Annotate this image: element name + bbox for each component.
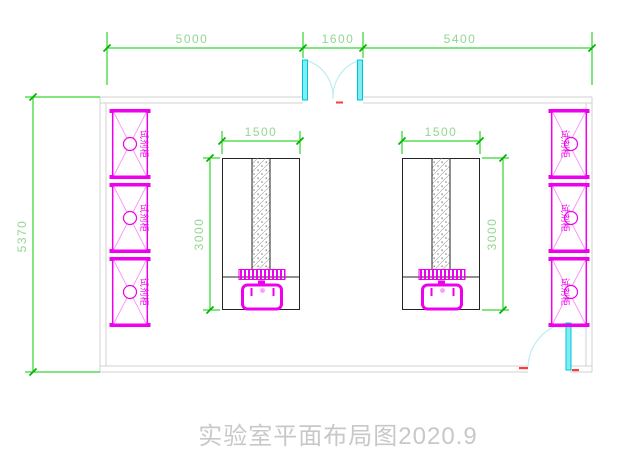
cabinet-foot	[147, 323, 151, 327]
cabinet-knob	[124, 138, 137, 151]
cabinet-foot	[549, 323, 553, 327]
cabinet-foot	[586, 109, 590, 113]
door-swing-arc-left	[308, 61, 333, 99]
dim-text-5370: 5370	[15, 220, 29, 253]
cabinet-right-2[interactable]: 试剂柜	[549, 183, 590, 253]
cabinet-foot	[110, 175, 114, 179]
cabinet-cap	[112, 176, 148, 180]
cabinet-label: 试剂柜	[139, 130, 150, 159]
cabinet-left-3[interactable]: 试剂柜	[110, 257, 151, 327]
drawing-title[interactable]: 实验室平面布局图2020.9	[198, 423, 477, 450]
cabinet-cap	[112, 109, 148, 113]
dim-text-5400: 5400	[444, 32, 477, 46]
cabinet-foot	[549, 183, 553, 187]
cabinet-foot	[147, 257, 151, 261]
cabinet-cap	[112, 183, 148, 187]
dim-text-3000: 3000	[485, 218, 499, 251]
cabinet-label: 试剂柜	[560, 130, 571, 159]
cabinet-knob	[124, 212, 137, 225]
cabinet-right-1[interactable]: 试剂柜	[549, 109, 590, 179]
cad-canvas[interactable]: 5000 1600 5400 5370 试剂柜	[0, 0, 619, 469]
door-swing-arc	[528, 323, 569, 367]
door-jamb-mark-left	[519, 367, 528, 369]
door-threshold-mark	[336, 102, 343, 104]
cabinet-cap	[551, 183, 587, 187]
cabinet-left-1[interactable]: 试剂柜	[110, 109, 151, 179]
cabinet-left-2[interactable]: 试剂柜	[110, 183, 151, 253]
door-swing-arc-right	[333, 61, 358, 99]
walls[interactable]	[100, 97, 592, 372]
cabinet-label: 试剂柜	[560, 204, 571, 233]
door-leaf-right	[358, 60, 363, 100]
cabinet-foot	[147, 175, 151, 179]
duct-strip-hatch	[252, 159, 270, 270]
door-jamb-mark-right	[572, 369, 579, 371]
dimension-top-chain[interactable]: 5000 1600 5400	[104, 32, 596, 85]
cabinet-cap	[112, 257, 148, 261]
cabinet-foot	[549, 257, 553, 261]
dimension-bench-left-width[interactable]: 1500	[219, 125, 304, 154]
top-double-door[interactable]	[303, 60, 363, 104]
door-leaf	[566, 323, 571, 370]
cabinet-column-right[interactable]: 试剂柜 试剂柜 试剂柜	[549, 109, 590, 327]
cabinet-cap	[551, 250, 587, 254]
cabinet-cap	[551, 109, 587, 113]
cabinet-foot	[147, 249, 151, 253]
cabinet-foot	[586, 257, 590, 261]
cabinet-foot	[586, 249, 590, 253]
cabinet-knob	[124, 286, 137, 299]
cabinet-foot	[110, 109, 114, 113]
dimension-bench-left-height[interactable]: 3000	[192, 155, 220, 314]
dim-text-1500: 1500	[245, 125, 278, 139]
dim-text-5000: 5000	[176, 32, 209, 46]
cabinet-foot	[110, 323, 114, 327]
sink-drain	[440, 288, 445, 293]
cabinet-cap	[551, 176, 587, 180]
cabinet-foot	[549, 249, 553, 253]
sink-grate	[419, 270, 465, 280]
cabinet-foot	[110, 257, 114, 261]
cabinet-cap	[551, 257, 587, 261]
bottom-right-door[interactable]	[519, 323, 579, 371]
dim-text-1600: 1600	[322, 32, 355, 46]
cabinet-foot	[549, 109, 553, 113]
dim-text-3000: 3000	[192, 218, 206, 251]
dimension-bench-right-height[interactable]: 3000	[482, 155, 509, 314]
sink-block[interactable]	[419, 270, 465, 310]
duct-strip-hatch	[432, 159, 450, 270]
cabinet-foot	[110, 183, 114, 187]
lab-bench-right[interactable]	[403, 159, 480, 310]
cabinet-foot	[147, 109, 151, 113]
cabinet-label: 试剂柜	[139, 278, 150, 307]
cabinet-foot	[586, 323, 590, 327]
dimension-left-wall[interactable]: 5370	[15, 94, 100, 376]
cabinet-cap	[112, 250, 148, 254]
sink-grate	[239, 270, 285, 280]
cabinet-label: 试剂柜	[560, 278, 571, 307]
sink-drain	[260, 288, 265, 293]
cabinet-foot	[147, 183, 151, 187]
cabinet-cap	[551, 324, 587, 328]
cabinet-cap	[112, 324, 148, 328]
cabinet-foot	[586, 183, 590, 187]
dimension-bench-right-width[interactable]: 1500	[399, 125, 484, 154]
cabinet-foot	[549, 175, 553, 179]
cabinet-foot	[586, 175, 590, 179]
cabinet-label: 试剂柜	[139, 204, 150, 233]
lab-bench-left[interactable]	[223, 159, 300, 310]
cabinet-column-left[interactable]: 试剂柜 试剂柜 试剂柜	[110, 109, 151, 327]
cabinet-right-3[interactable]: 试剂柜	[549, 257, 590, 327]
cabinet-foot	[110, 249, 114, 253]
door-leaf-left	[303, 60, 308, 100]
sink-block[interactable]	[239, 270, 285, 310]
dim-text-1500: 1500	[425, 125, 458, 139]
floorplan-drawing[interactable]: 5000 1600 5400 5370 试剂柜	[0, 0, 619, 469]
